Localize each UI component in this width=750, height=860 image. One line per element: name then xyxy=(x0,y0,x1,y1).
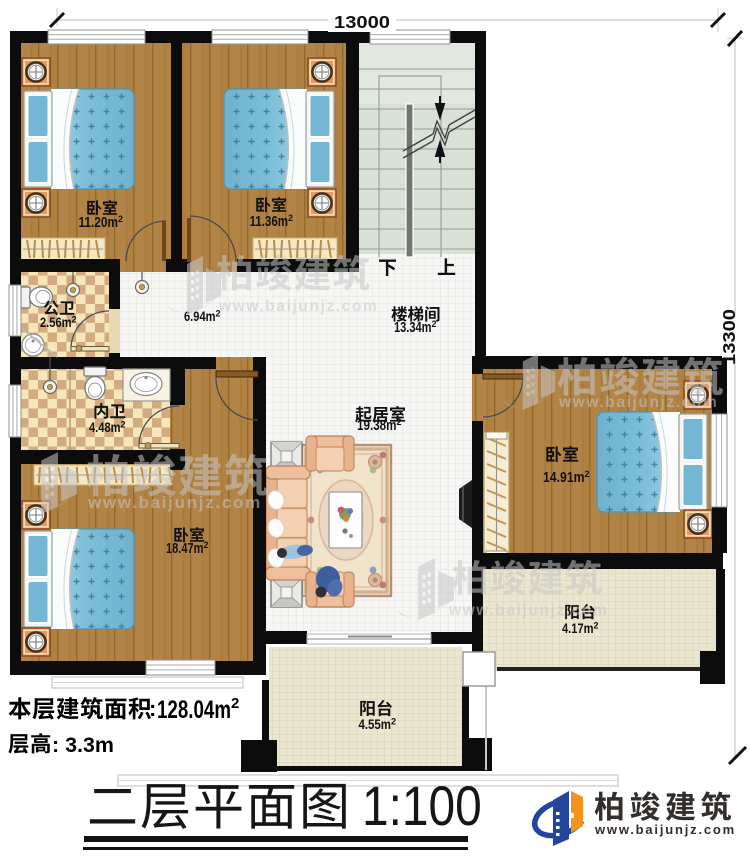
svg-text:www.baijunjz.com: www.baijunjz.com xyxy=(558,394,718,411)
svg-text:2: 2 xyxy=(391,716,396,726)
svg-text:1:100: 1:100 xyxy=(362,776,482,838)
svg-text:2: 2 xyxy=(432,319,437,329)
svg-text:4.55m: 4.55m xyxy=(359,716,392,732)
svg-text:11.20m: 11.20m xyxy=(79,214,119,231)
svg-text:2: 2 xyxy=(594,620,599,630)
svg-text:2: 2 xyxy=(231,695,239,712)
svg-text::: : xyxy=(149,696,156,721)
svg-text:www.baijunjz.com: www.baijunjz.com xyxy=(594,822,736,837)
svg-text:128.04m: 128.04m xyxy=(157,696,231,724)
svg-text:18.47m: 18.47m xyxy=(166,540,204,557)
svg-text:19.38m: 19.38m xyxy=(357,417,397,434)
svg-text:2.56m: 2.56m xyxy=(40,314,72,330)
svg-text:2: 2 xyxy=(397,417,402,427)
svg-text:2: 2 xyxy=(118,214,123,224)
svg-text:13300: 13300 xyxy=(719,309,739,365)
svg-text:www.baijunjz.com: www.baijunjz.com xyxy=(218,298,378,315)
svg-text:13000: 13000 xyxy=(334,12,390,32)
svg-text:2: 2 xyxy=(72,314,77,324)
svg-text:4.17m: 4.17m xyxy=(562,620,594,636)
svg-text:2: 2 xyxy=(288,213,293,223)
svg-text:13.34m: 13.34m xyxy=(394,319,432,336)
svg-text:4.48m: 4.48m xyxy=(89,419,121,435)
svg-text:www.baijunjz.com: www.baijunjz.com xyxy=(87,493,262,512)
svg-text:: 3.3m: : 3.3m xyxy=(52,733,114,757)
svg-text:14.91m: 14.91m xyxy=(543,469,585,486)
svg-text:11.36m: 11.36m xyxy=(250,213,289,230)
svg-text:2: 2 xyxy=(204,540,209,550)
svg-text:2: 2 xyxy=(585,469,590,479)
svg-text:www.baijunjz.com: www.baijunjz.com xyxy=(448,602,608,619)
svg-text:2: 2 xyxy=(121,419,126,429)
